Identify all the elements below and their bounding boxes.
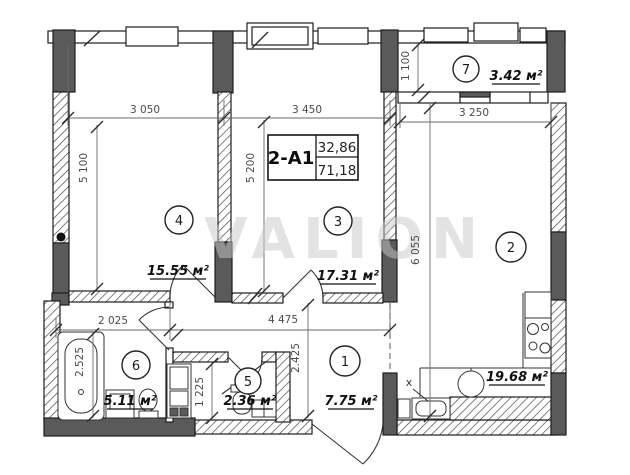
dim-hall-width: 4 475 — [268, 314, 298, 326]
stove — [525, 318, 551, 358]
marker-x: x — [406, 376, 413, 389]
room-2-area: 19.68 м² — [486, 370, 548, 385]
room-4-number: 4 — [175, 214, 183, 229]
right-wall — [551, 103, 566, 232]
wc-right-wall — [276, 352, 290, 422]
dim-balcony-depth: 1 100 — [400, 51, 412, 81]
pilaster — [381, 30, 398, 92]
dim-balcony-width: 3 250 — [459, 107, 489, 119]
window — [126, 27, 178, 46]
room-3-number: 3 — [334, 215, 342, 230]
wall-hall-2-dark — [383, 373, 397, 435]
pilaster — [53, 30, 75, 92]
balcony-sill-dark — [460, 92, 490, 97]
room-4-area: 15.55 м² — [147, 264, 209, 279]
dim-room3-width: 3 450 — [292, 104, 322, 116]
left-wall — [53, 92, 69, 243]
pilaster — [213, 31, 233, 93]
room-marker-7: 7 — [453, 56, 479, 82]
dim-room4-height: 5 100 — [78, 153, 90, 183]
dim-wc-height: 1 225 — [194, 377, 206, 407]
window — [424, 28, 468, 42]
room-marker-5: 5 — [235, 368, 261, 394]
room-1-number: 1 — [341, 355, 349, 370]
room-6-area: 5.11 м² — [104, 394, 157, 409]
room-marker-4: 4 — [165, 206, 193, 234]
wall-dot — [57, 233, 66, 242]
room-1-area: 7.75 м² — [325, 394, 378, 409]
right-wall-dark — [551, 232, 566, 300]
dim-room2-height: 6 055 — [410, 235, 422, 265]
corridor-wall — [323, 293, 383, 303]
apartment-code: 2-A1 — [268, 148, 314, 169]
right-wall-dark — [551, 373, 566, 435]
door-bathroom — [139, 307, 169, 350]
room-5-area: 2.36 м² — [224, 394, 277, 409]
dim-bathroom-height: 2.525 — [74, 347, 86, 377]
wc-top-wall — [173, 352, 228, 362]
room-marker-3: 3 — [324, 207, 352, 235]
dim-hall-height: 2.425 — [290, 343, 302, 373]
window — [474, 23, 518, 41]
washer-column — [167, 364, 191, 418]
bottom-wall — [195, 420, 312, 434]
pilaster — [547, 31, 565, 92]
room-3-area: 17.31 м² — [317, 269, 379, 284]
kitchen-sink — [458, 368, 484, 397]
corridor-wall — [69, 291, 170, 302]
floor-plan-drawing: VALION 3 050 3 450 3 250 5 100 5 200 1 1… — [0, 0, 630, 475]
room-marker-6: 6 — [122, 351, 150, 379]
living-area-value: 32,86 — [318, 140, 357, 156]
window — [520, 28, 546, 42]
title-block: 2-A1 32,86 71,18 — [268, 135, 358, 180]
entry-washer — [398, 389, 450, 419]
window — [252, 27, 308, 45]
room-marker-1: 1 — [330, 346, 360, 376]
total-area-value: 71,18 — [318, 163, 357, 179]
room-7-number: 7 — [462, 63, 470, 78]
wc-top-stub — [262, 352, 276, 362]
dim-room4-width: 3 050 — [130, 104, 160, 116]
room-5-number: 5 — [244, 375, 252, 390]
bottom-wall-right — [397, 420, 555, 435]
right-wall — [551, 300, 566, 373]
room-6-number: 6 — [132, 359, 140, 374]
corridor-wall — [232, 293, 283, 303]
door-entrance — [312, 424, 383, 464]
left-wall-dark — [53, 243, 69, 301]
window — [318, 28, 368, 44]
room-marker-2: 2 — [496, 232, 526, 262]
bottom-wall-kitchen — [450, 397, 555, 420]
room-7-area: 3.42 м² — [490, 69, 543, 84]
room-2-number: 2 — [507, 241, 515, 256]
dim-bathroom-width: 2 025 — [98, 315, 128, 327]
floor-plan-page: VALION 3 050 3 450 3 250 5 100 5 200 1 1… — [0, 0, 630, 475]
dim-room3-height: 5 200 — [245, 153, 257, 183]
